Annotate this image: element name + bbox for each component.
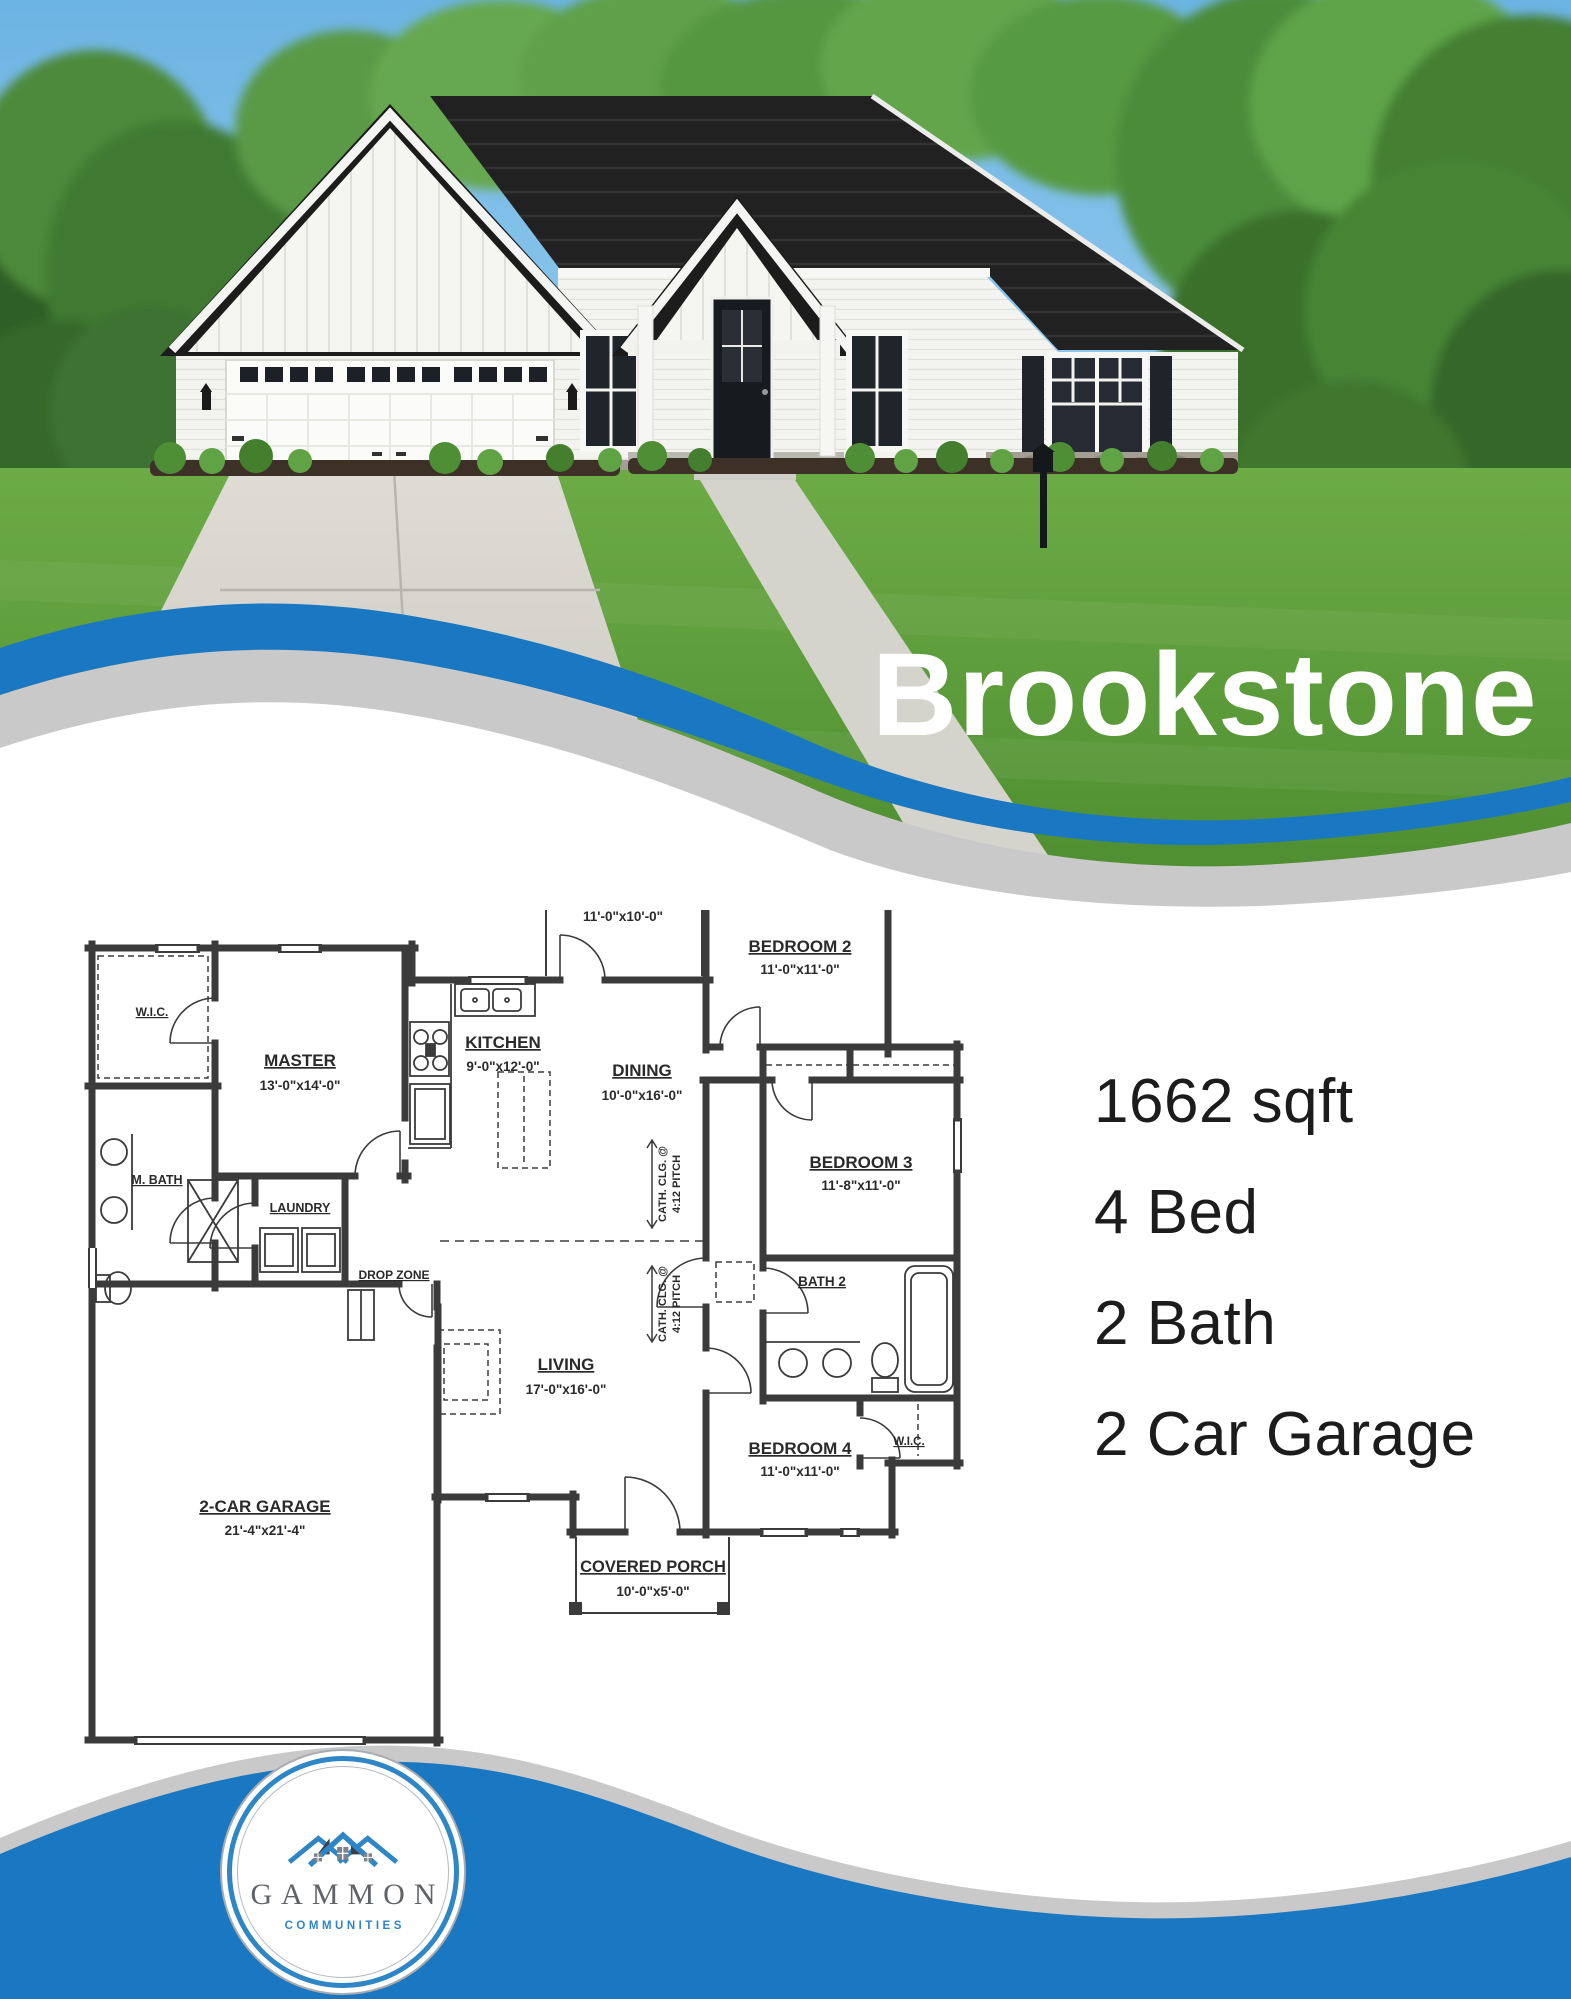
- spec-sqft: 1662 sqft: [1094, 1046, 1476, 1157]
- garage-door-hinge: [536, 436, 548, 441]
- room-dim: 10'-0"x16'-0": [602, 1088, 683, 1103]
- front-window-right: [846, 330, 908, 452]
- plan-walls: [88, 860, 960, 1743]
- room-label: MASTER: [264, 1051, 336, 1070]
- floor-plan: COV. PATIO 11'-0"x10'-0" BEDROOM 2 11'-0…: [60, 818, 985, 1748]
- specs-list: 1662 sqft 4 Bed 2 Bath 2 Car Garage: [1094, 1046, 1476, 1490]
- room-dim: 9'-0"x12'-0": [466, 1059, 539, 1074]
- room-label: BEDROOM 3: [810, 1153, 913, 1172]
- ceiling-note: CATH. CLG. @: [657, 1146, 669, 1222]
- room-dim: 13'-0"x14'-0": [260, 1078, 341, 1093]
- room-label: W.I.C.: [893, 1436, 924, 1448]
- room-label: COVERED PORCH: [580, 1558, 726, 1576]
- spec-beds: 4 Bed: [1094, 1157, 1476, 1268]
- room-label: M. BATH: [131, 1173, 182, 1187]
- room-label: LAUNDRY: [270, 1201, 331, 1215]
- garage-door-handle: [396, 452, 406, 456]
- room-dim: 17'-0"x16'-0": [526, 1382, 607, 1397]
- garage-door-hinge: [232, 436, 244, 441]
- logo-badge: GAMMON COMMUNITIES: [220, 1749, 466, 1995]
- logo-content: GAMMON COMMUNITIES: [222, 1751, 464, 1993]
- spec-baths: 2 Bath: [1094, 1268, 1476, 1379]
- room-label: DINING: [612, 1061, 672, 1080]
- logo-tagline: COMMUNITIES: [281, 1920, 405, 1932]
- logo-name: GAMMON: [241, 1878, 444, 1912]
- room-dim: 21'-4"x21'-4": [225, 1523, 306, 1538]
- room-label: BATH 2: [798, 1274, 846, 1289]
- porch-post: [638, 306, 653, 456]
- room-label: W.I.C.: [136, 1005, 169, 1019]
- plan-title: Brookstone: [872, 636, 1532, 754]
- plan-dashed: [98, 956, 954, 1456]
- porch-post: [820, 306, 835, 456]
- room-label: BEDROOM 2: [749, 937, 852, 956]
- ceiling-note: 4:12 PITCH: [671, 1275, 683, 1333]
- spec-garage: 2 Car Garage: [1094, 1379, 1476, 1490]
- room-label: BEDROOM 4: [749, 1439, 853, 1458]
- flyer-page: Brookstone: [0, 0, 1571, 1999]
- room-dim: 10'-0"x5'-0": [616, 1584, 689, 1599]
- room-dim: 11'-8"x11'-0": [821, 1178, 900, 1193]
- plan-labels: COV. PATIO 11'-0"x10'-0" BEDROOM 2 11'-0…: [131, 885, 924, 1599]
- logo-houses-icon: [284, 1823, 402, 1873]
- room-label: 2-CAR GARAGE: [199, 1497, 330, 1516]
- room-label: DROP ZONE: [358, 1268, 429, 1282]
- room-dim: 11'-0"x10'-0": [583, 909, 663, 924]
- room-dim: 11'-0"x11'-0": [760, 1464, 839, 1479]
- room-label: LIVING: [538, 1355, 595, 1374]
- mulch-bed: [628, 458, 1238, 474]
- ceiling-note: 4:12 PITCH: [671, 1155, 683, 1213]
- front-door: [712, 298, 772, 462]
- garage-door-handle: [372, 452, 382, 456]
- ceiling-note: CATH. CLG. @: [657, 1266, 669, 1342]
- room-dim: 11'-0"x11'-0": [760, 962, 839, 977]
- room-label: KITCHEN: [465, 1033, 541, 1052]
